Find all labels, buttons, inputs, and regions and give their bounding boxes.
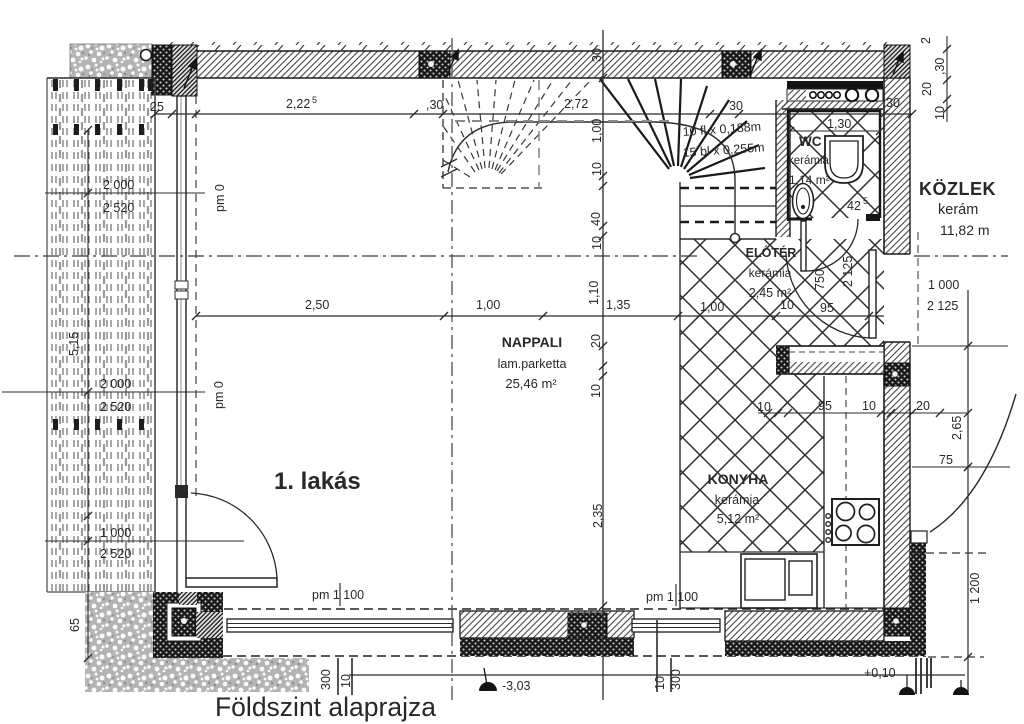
svg-text:1,00: 1,00 (700, 300, 724, 314)
svg-text:10: 10 (589, 384, 603, 398)
svg-text:300: 300 (319, 669, 333, 690)
svg-text:pm 0: pm 0 (212, 381, 226, 409)
svg-text:5,15: 5,15 (67, 332, 81, 356)
svg-text:KÖZLEK: KÖZLEK (919, 179, 996, 199)
svg-text:2 520: 2 520 (100, 547, 131, 561)
svg-text:2 000: 2 000 (103, 178, 134, 192)
svg-text:10: 10 (590, 162, 604, 176)
svg-text:5,12 m²: 5,12 m² (717, 512, 759, 526)
svg-text:kerám: kerám (938, 202, 978, 218)
svg-text:20: 20 (589, 334, 603, 348)
svg-text:KONYHA: KONYHA (708, 471, 769, 487)
svg-text:750: 750 (813, 269, 827, 290)
svg-text:30: 30 (886, 96, 900, 110)
svg-text:2 520: 2 520 (103, 201, 134, 215)
svg-text:WC: WC (799, 134, 822, 149)
svg-text:1,10: 1,10 (587, 281, 601, 305)
svg-text:10: 10 (862, 399, 876, 413)
svg-text:,30: ,30 (933, 58, 947, 75)
svg-text:10: 10 (590, 236, 604, 250)
svg-text:pm 0: pm 0 (213, 184, 227, 212)
svg-text:10: 10 (339, 674, 353, 688)
svg-text:2,65: 2,65 (950, 416, 964, 440)
svg-text:pm 1 100: pm 1 100 (312, 588, 364, 602)
svg-text:2,35: 2,35 (591, 504, 605, 528)
svg-text:1 200: 1 200 (968, 573, 982, 604)
svg-text:lam.parketta: lam.parketta (498, 357, 567, 371)
svg-text:30: 30 (590, 48, 604, 62)
svg-text:ELŐTÉR: ELŐTÉR (746, 245, 797, 260)
svg-text:kerámia: kerámia (749, 266, 792, 280)
svg-text:NAPPALI: NAPPALI (502, 334, 562, 350)
svg-text:95: 95 (818, 399, 832, 413)
svg-text:,30: ,30 (426, 98, 443, 112)
svg-text:65: 65 (68, 618, 82, 632)
svg-text:25,46 m²: 25,46 m² (505, 376, 557, 391)
svg-text:1,00: 1,00 (476, 298, 500, 312)
svg-text:kerámia: kerámia (715, 493, 760, 507)
svg-text:11,82 m: 11,82 m (940, 222, 990, 238)
svg-text:20: 20 (920, 82, 934, 96)
svg-text:1. lakás: 1. lakás (274, 468, 361, 495)
svg-text:10: 10 (933, 106, 947, 120)
svg-text:2,50: 2,50 (305, 298, 329, 312)
svg-text:1,35: 1,35 (606, 298, 630, 312)
svg-text:1,30: 1,30 (827, 117, 851, 131)
svg-text:20: 20 (916, 399, 930, 413)
svg-text:2 125: 2 125 (927, 299, 958, 313)
svg-text:5: 5 (312, 95, 317, 105)
svg-text:1,00: 1,00 (590, 119, 604, 143)
svg-text:kerámia: kerámia (788, 155, 830, 167)
svg-text:10: 10 (780, 298, 794, 312)
svg-text:10: 10 (653, 676, 667, 690)
svg-text:2: 2 (919, 37, 933, 44)
svg-text:25: 25 (150, 100, 164, 114)
svg-text:75: 75 (939, 453, 953, 467)
svg-text:2 000: 2 000 (100, 377, 131, 391)
svg-text:10: 10 (757, 400, 771, 414)
svg-text:5: 5 (863, 196, 868, 206)
svg-text:pm 1 100: pm 1 100 (646, 590, 698, 604)
svg-text:+0,10: +0,10 (864, 666, 896, 680)
svg-text:2 125: 2 125 (841, 256, 855, 287)
svg-text:40: 40 (589, 212, 603, 226)
svg-text:1,14 m²: 1,14 m² (789, 173, 830, 187)
svg-text:1 000: 1 000 (100, 526, 131, 540)
svg-text:30: 30 (729, 99, 743, 113)
svg-text:2,72: 2,72 (564, 97, 588, 111)
svg-text:2 520: 2 520 (100, 400, 131, 414)
svg-text:42: 42 (847, 199, 861, 213)
svg-text:Földszint alaprajza: Földszint alaprajza (215, 692, 436, 722)
svg-text:95: 95 (820, 301, 834, 315)
svg-text:-3,03: -3,03 (502, 679, 531, 693)
svg-text:2,45 m²: 2,45 m² (749, 286, 791, 300)
svg-text:2,22: 2,22 (286, 97, 310, 111)
svg-text:1 000: 1 000 (928, 278, 959, 292)
svg-text:300: 300 (669, 669, 683, 690)
